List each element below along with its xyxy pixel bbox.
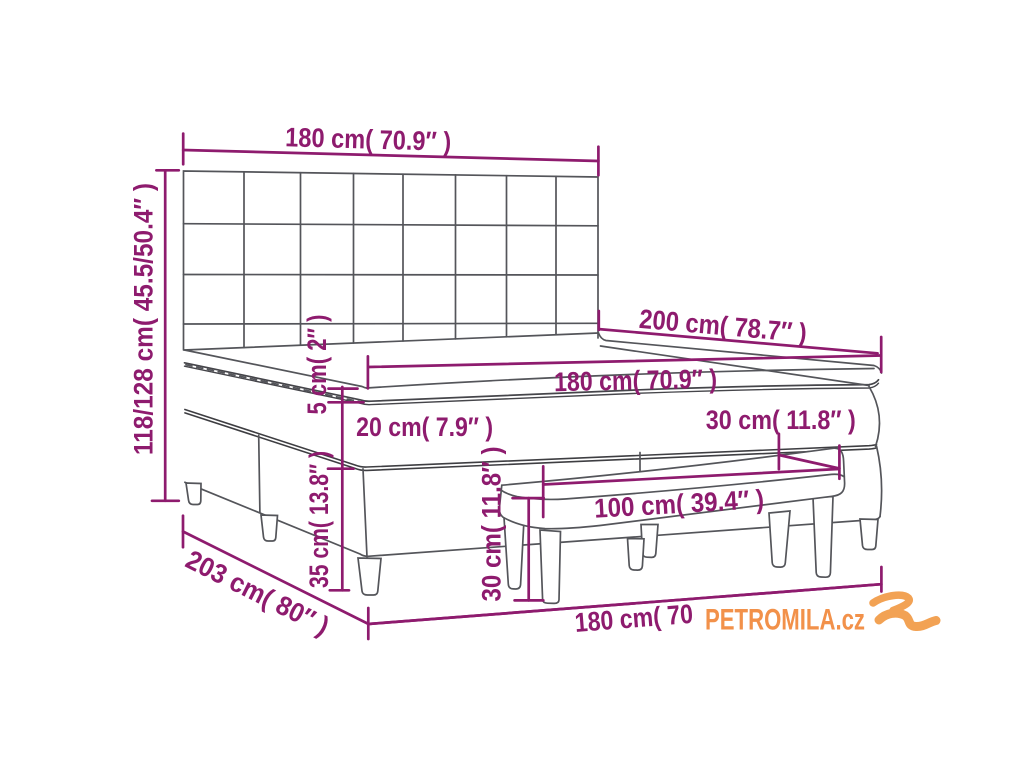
svg-text:PETROMILA.cz: PETROMILA.cz [705,604,865,637]
svg-text:30 cm( 11.8″ ): 30 cm( 11.8″ ) [706,405,856,435]
svg-text:5 cm( 2″ ): 5 cm( 2″ ) [302,315,332,415]
svg-text:30 cm( 11.8″ ): 30 cm( 11.8″ ) [477,447,507,602]
svg-text:35 cm( 13.8″ ): 35 cm( 13.8″ ) [304,451,334,588]
svg-text:180 cm( 70.9″ ): 180 cm( 70.9″ ) [554,364,718,397]
svg-text:180 cm( 70.9″ ): 180 cm( 70.9″ ) [285,122,452,157]
svg-text:118/128 cm( 45.5/50.4″ ): 118/128 cm( 45.5/50.4″ ) [129,183,159,455]
svg-text:20 cm( 7.9″ ): 20 cm( 7.9″ ) [356,412,493,442]
